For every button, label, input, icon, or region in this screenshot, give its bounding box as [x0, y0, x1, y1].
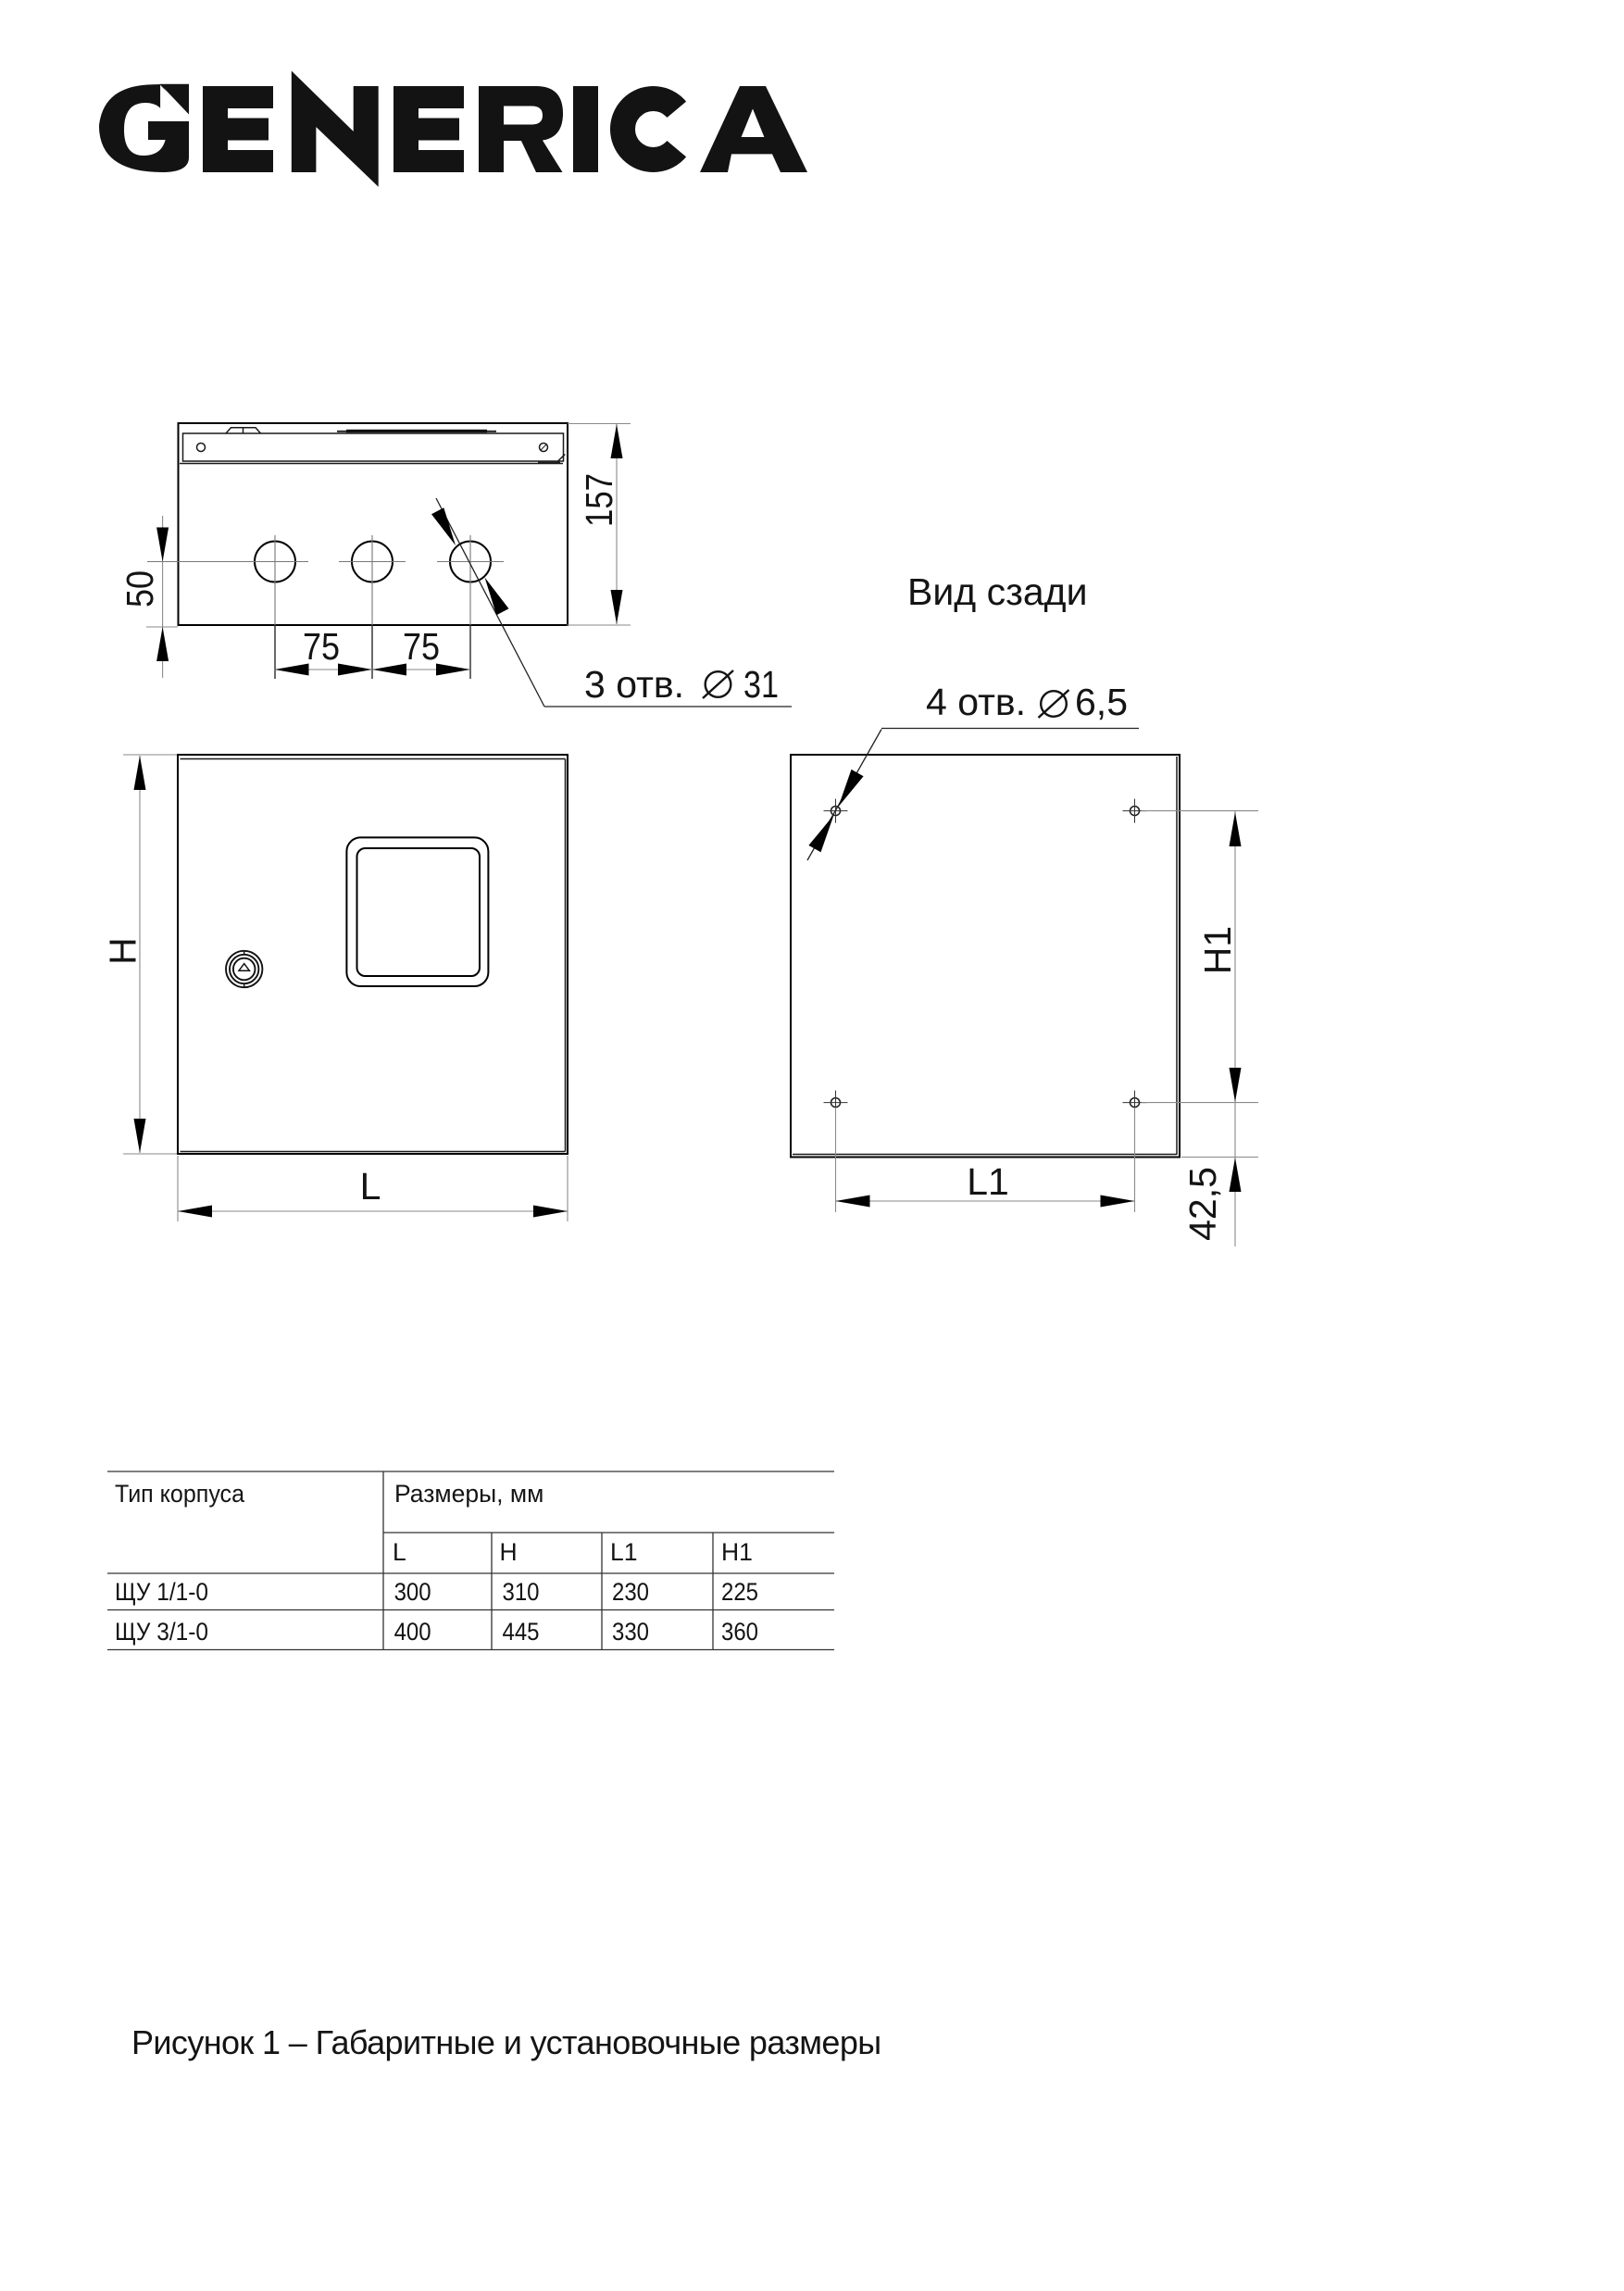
svg-text:42,5: 42,5 — [1181, 1167, 1224, 1241]
svg-text:L1: L1 — [967, 1160, 1009, 1203]
svg-text:50: 50 — [119, 570, 161, 607]
svg-text:310: 310 — [503, 1578, 540, 1606]
svg-text:31: 31 — [743, 663, 779, 706]
svg-text:75: 75 — [403, 625, 440, 668]
svg-text:L: L — [393, 1538, 406, 1566]
svg-text:157: 157 — [578, 473, 620, 527]
svg-text:330: 330 — [612, 1618, 649, 1646]
svg-text:Размеры, мм: Размеры, мм — [394, 1480, 543, 1508]
svg-text:H: H — [102, 937, 144, 965]
svg-text:Рисунок 1 – Габаритные и устан: Рисунок 1 – Габаритные и установочные ра… — [131, 2023, 881, 2061]
svg-text:445: 445 — [503, 1618, 540, 1646]
svg-text:225: 225 — [721, 1578, 758, 1606]
svg-text:L1: L1 — [610, 1538, 637, 1566]
svg-text:Вид сзади: Вид сзади — [907, 570, 1088, 613]
svg-text:300: 300 — [394, 1578, 431, 1606]
svg-text:ЩУ 1/1-0: ЩУ 1/1-0 — [115, 1578, 208, 1606]
svg-text:H1: H1 — [1196, 926, 1239, 974]
svg-text:400: 400 — [394, 1618, 431, 1646]
svg-text:75: 75 — [303, 625, 340, 668]
svg-text:6,5: 6,5 — [1075, 681, 1128, 723]
svg-text:360: 360 — [721, 1618, 758, 1646]
svg-text:ЩУ 3/1-0: ЩУ 3/1-0 — [115, 1618, 208, 1646]
svg-text:3 отв.: 3 отв. — [584, 663, 684, 706]
svg-text:H1: H1 — [721, 1538, 753, 1566]
svg-text:H: H — [500, 1538, 518, 1566]
svg-text:Тип корпуса: Тип корпуса — [115, 1480, 244, 1508]
svg-text:L: L — [360, 1165, 381, 1208]
svg-text:230: 230 — [612, 1578, 649, 1606]
svg-text:4 отв.: 4 отв. — [926, 681, 1026, 723]
